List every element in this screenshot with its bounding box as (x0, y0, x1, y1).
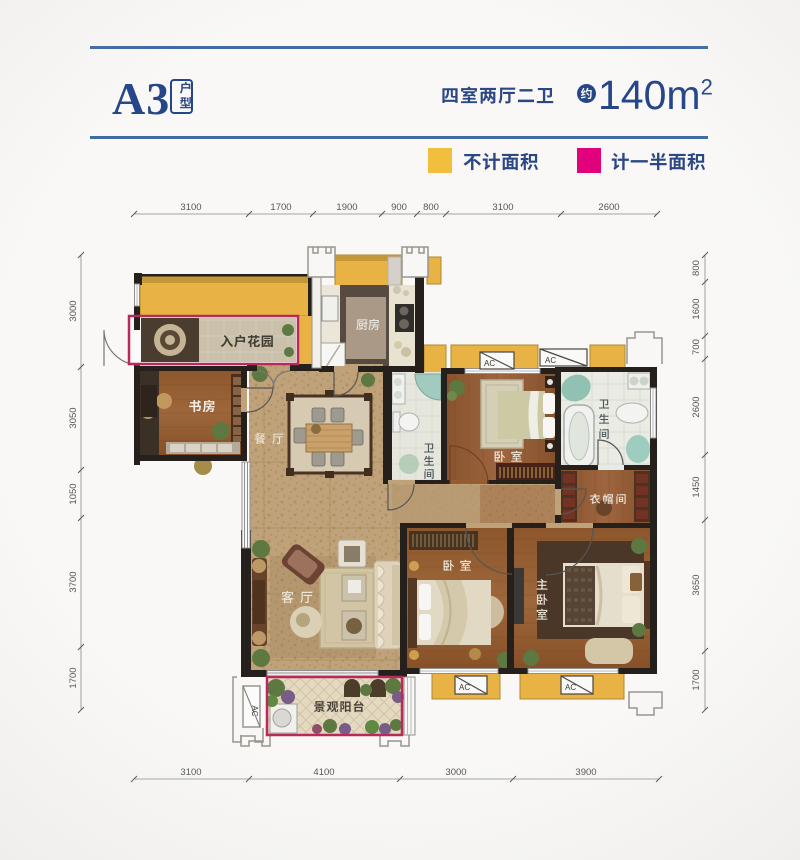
svg-text:AC: AC (484, 359, 495, 368)
svg-text:1700: 1700 (270, 202, 291, 213)
svg-text:2600: 2600 (598, 202, 619, 213)
svg-text:3100: 3100 (180, 202, 201, 213)
svg-text:1700: 1700 (691, 669, 702, 690)
svg-text:2600: 2600 (691, 396, 702, 417)
svg-text:3700: 3700 (68, 571, 79, 592)
svg-text:3900: 3900 (575, 767, 596, 778)
svg-text:3000: 3000 (68, 300, 79, 321)
svg-text:1050: 1050 (68, 483, 79, 504)
svg-text:3100: 3100 (492, 202, 513, 213)
svg-text:1700: 1700 (68, 667, 79, 688)
svg-text:1900: 1900 (336, 202, 357, 213)
svg-text:3100: 3100 (180, 767, 201, 778)
svg-text:800: 800 (691, 260, 702, 276)
svg-text:3000: 3000 (445, 767, 466, 778)
svg-text:AC: AC (250, 705, 259, 716)
svg-text:1600: 1600 (691, 298, 702, 319)
svg-text:AC: AC (565, 683, 576, 692)
svg-text:3050: 3050 (68, 407, 79, 428)
svg-text:900: 900 (391, 202, 407, 213)
svg-text:4100: 4100 (313, 767, 334, 778)
svg-text:1450: 1450 (691, 476, 702, 497)
svg-text:AC: AC (545, 356, 556, 365)
svg-text:800: 800 (423, 202, 439, 213)
svg-text:3650: 3650 (691, 574, 702, 595)
svg-text:AC: AC (459, 683, 470, 692)
svg-text:700: 700 (691, 339, 702, 355)
